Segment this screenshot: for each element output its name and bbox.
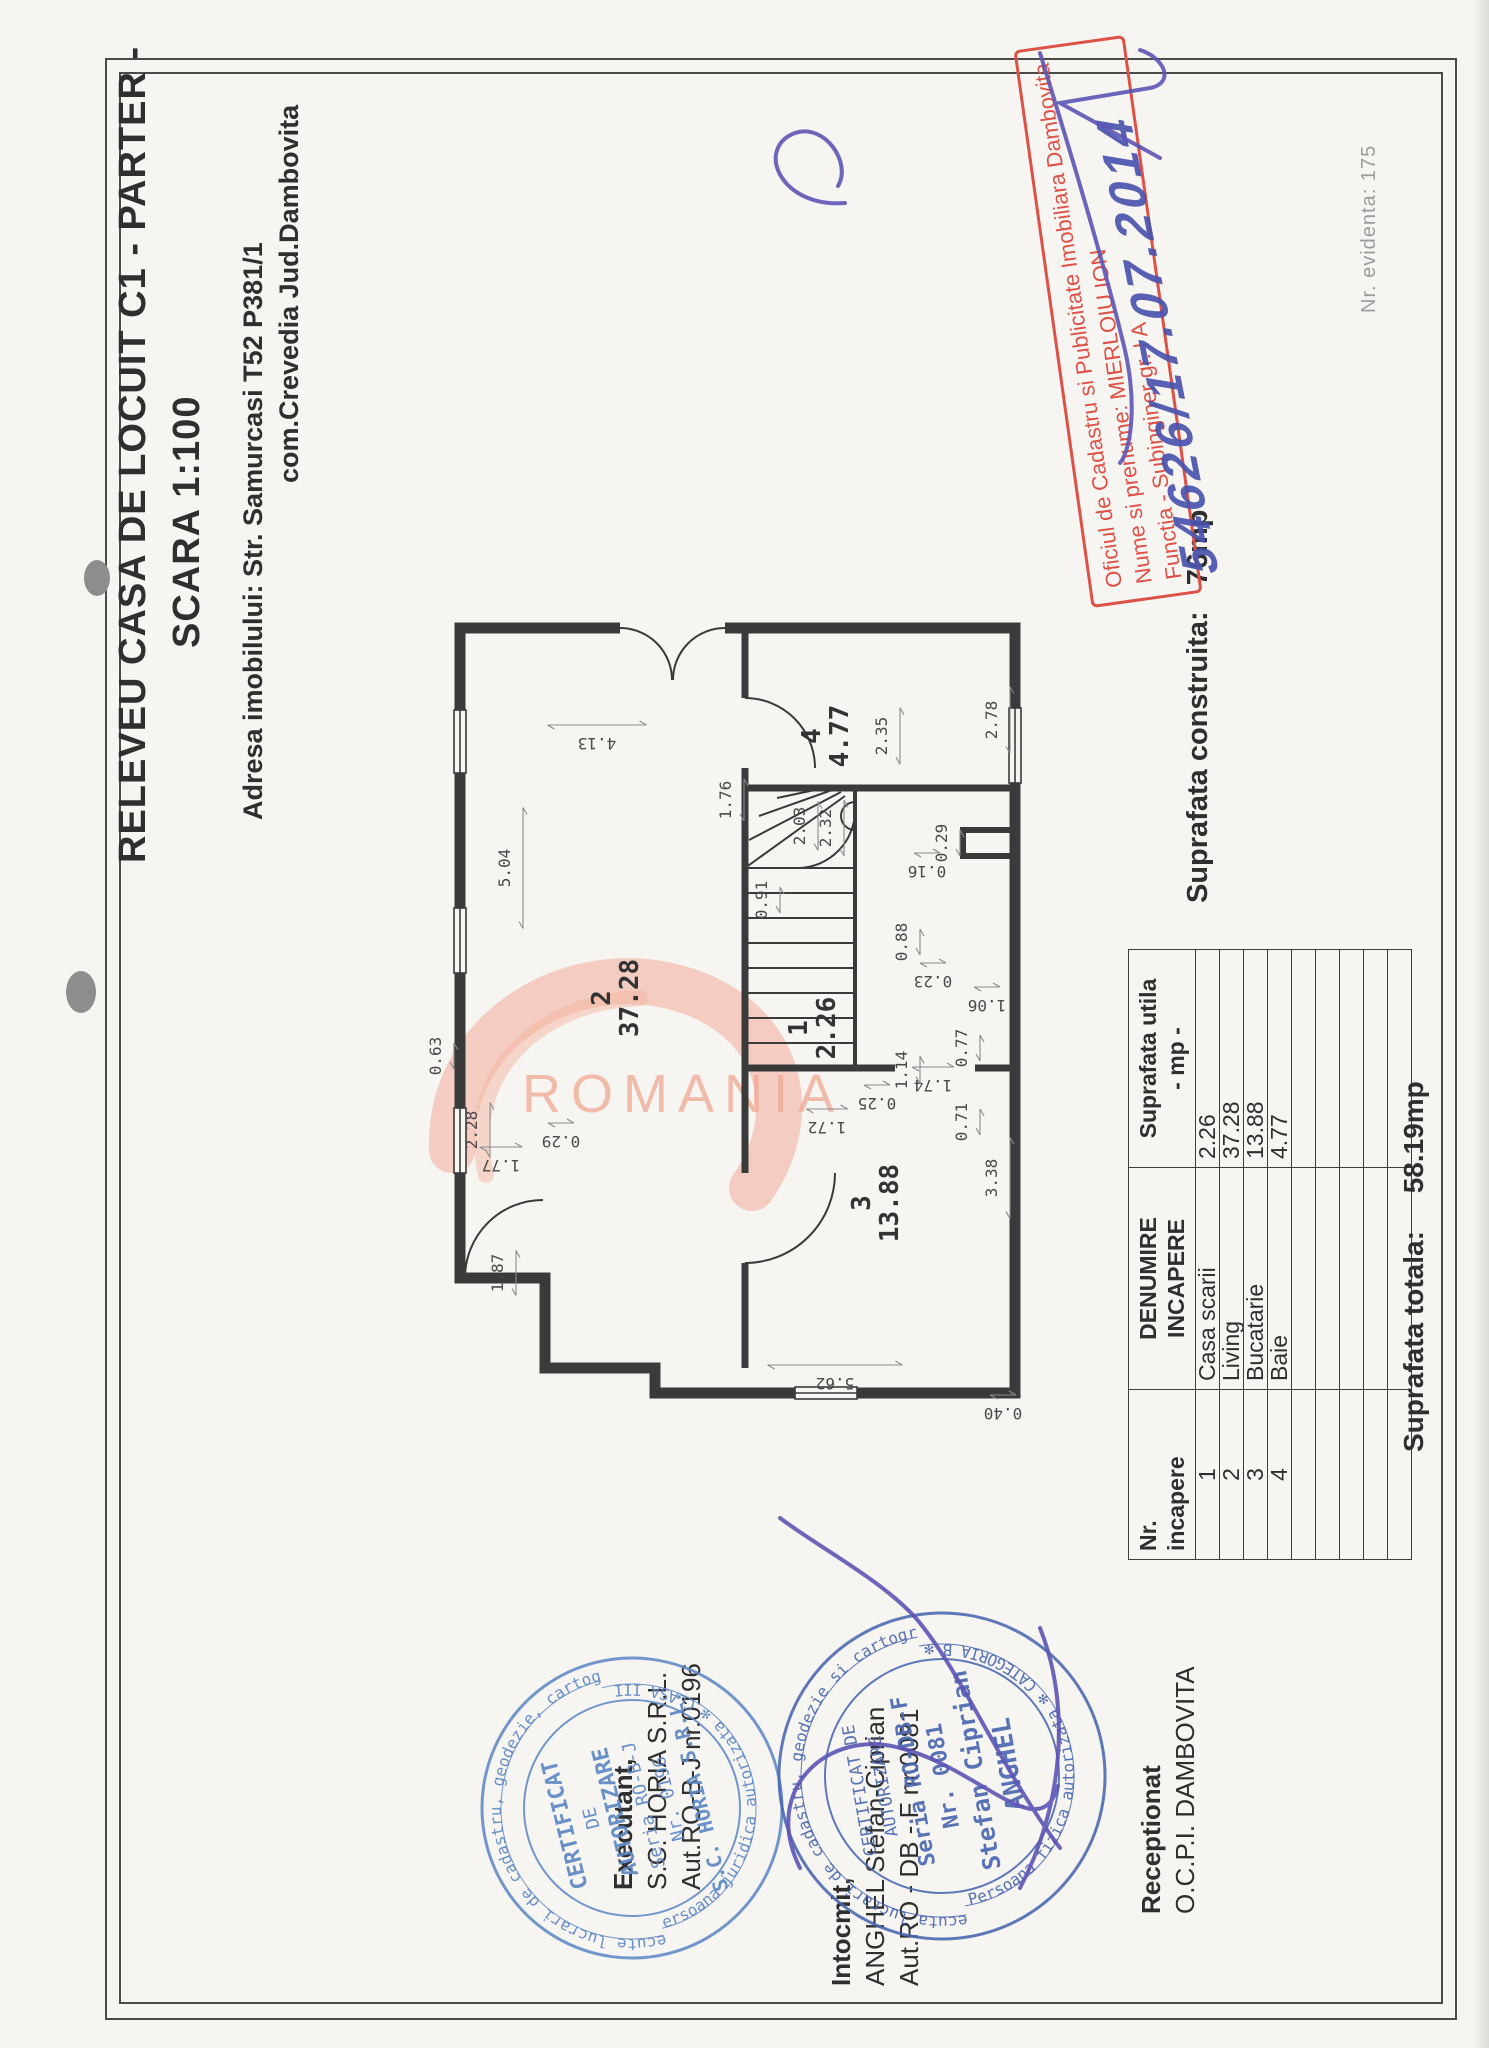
- scan-edge-shadow: [1473, 0, 1489, 2048]
- signature-stroke: [1040, 53, 1132, 463]
- signature-stroke: [780, 1518, 1060, 1848]
- signature-stroke: [1060, 50, 1164, 158]
- document-sheet: RELEVEU CASA DE LOCUIT C1 - PARTER - SCA…: [0, 0, 1489, 2048]
- signature-stroke: [776, 131, 845, 203]
- scanned-page: ROMANIA RELEVEU CASA DE LOCUIT C1 - PART…: [0, 0, 1489, 2048]
- signature-strokes: [0, 0, 1489, 2048]
- signature-stroke: [788, 1744, 1058, 1868]
- signature-stroke: [1020, 1628, 1059, 1888]
